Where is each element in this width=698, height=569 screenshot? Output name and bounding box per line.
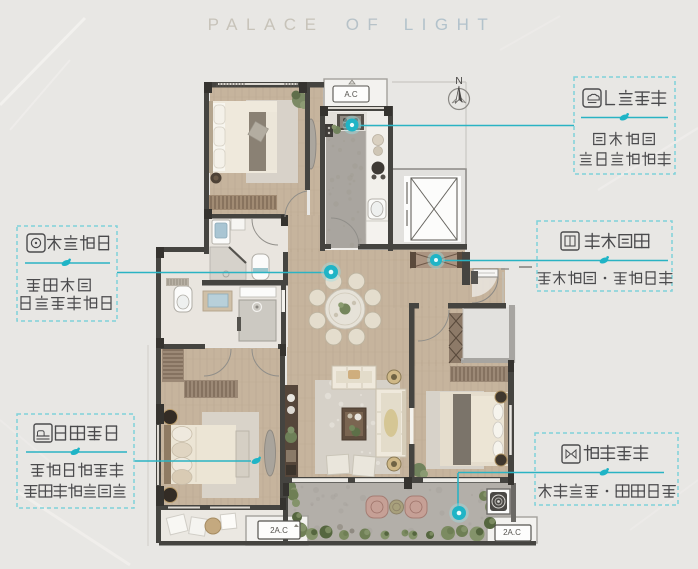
svg-text:LIGHT: LIGHT (404, 15, 497, 34)
svg-text:PALACE: PALACE (208, 15, 325, 34)
svg-text:2A.C: 2A.C (503, 528, 521, 537)
svg-text:N: N (455, 75, 463, 87)
svg-text:A.C: A.C (344, 90, 358, 99)
svg-text:OF: OF (346, 15, 387, 34)
svg-text:2A.C: 2A.C (270, 526, 288, 535)
